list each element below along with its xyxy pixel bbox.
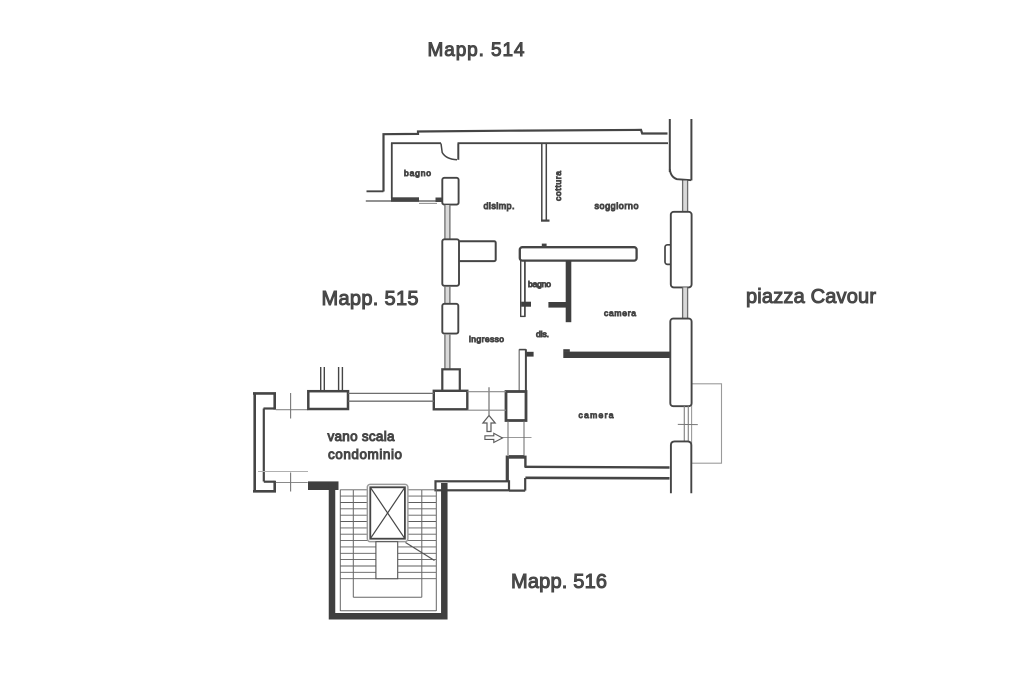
svg-text:disimp.: disimp.: [484, 201, 515, 211]
svg-text:piazza Cavour: piazza Cavour: [746, 286, 876, 308]
svg-text:Mapp. 515: Mapp. 515: [322, 288, 419, 310]
svg-text:bagno: bagno: [528, 279, 551, 289]
svg-text:bagno: bagno: [404, 168, 431, 178]
svg-text:dis.: dis.: [536, 329, 549, 339]
svg-text:Mapp. 516: Mapp. 516: [511, 571, 607, 593]
svg-text:soggiorno: soggiorno: [595, 201, 639, 211]
svg-text:camera: camera: [604, 308, 636, 318]
svg-text:camera: camera: [579, 410, 614, 420]
svg-text:condominio: condominio: [328, 447, 402, 462]
svg-text:vano scala: vano scala: [328, 429, 395, 444]
svg-text:ingresso: ingresso: [469, 334, 504, 344]
svg-text:cottura: cottura: [553, 171, 563, 201]
svg-text:Mapp. 514: Mapp. 514: [428, 40, 525, 61]
